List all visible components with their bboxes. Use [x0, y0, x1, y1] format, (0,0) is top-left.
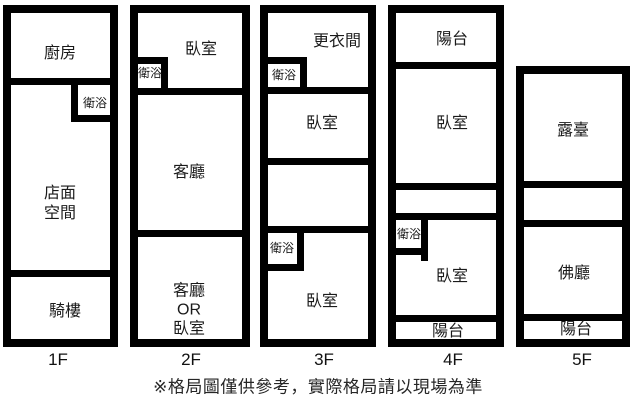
wall-5f-balcony-divider — [524, 314, 622, 321]
disclaimer-text: ※格局圖僅供參考，實際格局請以現場為準 — [153, 373, 483, 398]
room-label-storefront-line1: 店面 — [44, 184, 76, 204]
room-label-bath-3f-lower: 衛浴 — [270, 242, 294, 254]
room-label-kitchen: 廚房 — [44, 46, 76, 62]
wall-4f-bath-bottom — [396, 248, 428, 255]
floor-label-4f: 4F — [443, 350, 463, 370]
floorplan-4f-inner: 陽台 臥室 衛浴 臥室 陽台 — [396, 13, 496, 339]
wall-4f-bedroom-divider — [396, 183, 496, 190]
floorplan-1f-inner: 廚房 衛浴 店面 空間 騎樓 — [11, 13, 110, 339]
wall-4f-stair-divider — [396, 213, 496, 220]
wall-2f-bedroom-divider — [138, 88, 242, 95]
wall-2f-living-divider — [138, 230, 242, 237]
floorplan-3f: 更衣間 衛浴 臥室 衛浴 臥室 — [260, 5, 376, 347]
room-label-bath-2f: 衛浴 — [138, 67, 162, 79]
room-label-living-room: 客廳 — [173, 165, 205, 181]
floorplan-2f-inner: 臥室 衛浴 客廳 客廳 OR 臥室 — [138, 13, 242, 339]
floorplan-5f: 露臺 佛廳 陽台 — [516, 66, 630, 347]
wall-5f-stair-divider — [524, 220, 622, 227]
wall-3f-bath-lower-bottom — [268, 264, 304, 271]
room-label-bath-3f-upper: 衛浴 — [272, 69, 296, 81]
wall-1f-kitchen-divider — [11, 78, 110, 85]
floorplan-canvas: 廚房 衛浴 店面 空間 騎樓 臥室 衛浴 客廳 客廳 OR 臥室 — [0, 0, 640, 404]
room-label-balcony-4f-lower: 陽台 — [432, 324, 464, 340]
floor-label-5f: 5F — [572, 350, 592, 370]
floor-label-2f: 2F — [181, 350, 201, 370]
room-label-bedroom-3f-upper: 臥室 — [306, 116, 338, 132]
room-label-bedroom-4f-upper: 臥室 — [436, 116, 468, 132]
room-label-bath-4f: 衛浴 — [397, 228, 421, 240]
room-label-terrace: 露臺 — [557, 123, 589, 139]
wall-3f-bedroom-divider — [268, 158, 368, 165]
room-label-balcony-4f-upper: 陽台 — [436, 32, 468, 48]
room-label-bath-1f: 衛浴 — [83, 97, 107, 109]
wall-4f-balcony-lower-divider — [396, 315, 496, 322]
room-label-flex-line1: 客廳 — [173, 282, 205, 301]
room-label-flex-line3: 臥室 — [173, 320, 205, 339]
room-label-balcony-5f: 陽台 — [560, 322, 592, 338]
room-label-storefront: 店面 空間 — [44, 184, 76, 224]
room-label-bedroom-4f-lower: 臥室 — [436, 269, 468, 285]
floorplan-3f-inner: 更衣間 衛浴 臥室 衛浴 臥室 — [268, 13, 368, 339]
floorplan-4f: 陽台 臥室 衛浴 臥室 陽台 — [388, 5, 504, 347]
floor-label-3f: 3F — [314, 350, 334, 370]
wall-5f-terrace-divider — [524, 181, 622, 188]
room-label-arcade: 騎樓 — [49, 304, 81, 320]
room-label-bedroom-3f-lower: 臥室 — [306, 294, 338, 310]
floorplan-1f: 廚房 衛浴 店面 空間 騎樓 — [3, 5, 118, 347]
floorplan-5f-inner: 露臺 佛廳 陽台 — [524, 74, 622, 339]
wall-1f-bath-bottom — [71, 115, 110, 122]
room-label-flex-line2: OR — [173, 301, 205, 320]
room-label-living-or-bedroom: 客廳 OR 臥室 — [173, 282, 205, 339]
room-label-buddha-hall: 佛廳 — [558, 266, 590, 282]
wall-3f-dressing-divider — [268, 87, 368, 94]
floorplan-2f: 臥室 衛浴 客廳 客廳 OR 臥室 — [130, 5, 250, 347]
room-label-bedroom-2f: 臥室 — [185, 42, 217, 58]
room-label-storefront-line2: 空間 — [44, 204, 76, 224]
wall-1f-arcade-divider — [11, 270, 110, 277]
floor-label-1f: 1F — [48, 350, 68, 370]
wall-4f-balcony-upper-divider — [396, 62, 496, 69]
room-label-dressing-room: 更衣間 — [313, 34, 361, 50]
wall-3f-stair-divider — [268, 226, 368, 233]
